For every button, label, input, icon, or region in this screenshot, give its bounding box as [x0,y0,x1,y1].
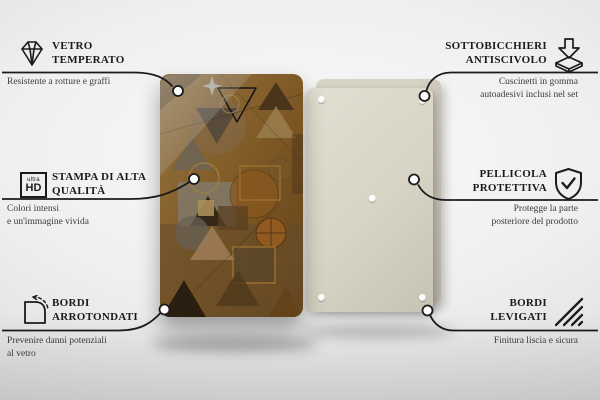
rubber-pad [318,96,325,103]
rubber-pad [419,294,426,301]
callout-subtitle-coasters: Cuscinetti in gomma autoadesivi inclusi … [480,76,578,101]
back-panel-image [306,88,433,312]
callout-title-coasters: SOTTOBICCHIERI ANTISCIVOLO [445,40,547,67]
callout-subtitle-tempered-glass: Resistente a rotture e graffi [7,76,110,89]
callout-subtitle-smooth-edges: Finitura liscia e sicura [494,335,578,348]
callout-subtitle-protective-film: Protegge la parte posteriore del prodott… [491,203,578,228]
front-panel-image [160,74,303,317]
ultra-hd-icon: ultra HD [20,172,47,198]
rubber-pad [369,195,376,202]
shield-check-icon [553,167,584,201]
callout-title-print-quality: STAMPA DI ALTA QUALITÀ [52,171,146,198]
callout-title-rounded-edges: BORDI ARROTONDATI [52,297,138,324]
callout-subtitle-print-quality: Colori intensi e un'immagine vivida [7,203,89,228]
callout-subtitle-rounded-edges: Prevenire danni potenziali al vetro [7,335,107,360]
back-panel-floor-shadow [302,324,454,338]
rubber-pad [318,294,325,301]
callout-title-tempered-glass: VETRO TEMPERATO [52,40,125,67]
press-down-icon [552,37,586,73]
abstract-geometric-art [160,74,303,317]
callout-title-protective-film: PELLICOLA PROTETTIVA [473,168,547,195]
product-infographic: VETRO TEMPERATO Resistente a rotture e g… [0,0,600,400]
rubber-pad [419,97,426,104]
callout-title-smooth-edges: BORDI LEVIGATI [490,297,547,324]
hatch-lines-icon [552,295,585,328]
front-panel-floor-shadow [152,336,318,352]
rounded-corner-icon [18,295,50,327]
diamond-icon [16,39,48,68]
